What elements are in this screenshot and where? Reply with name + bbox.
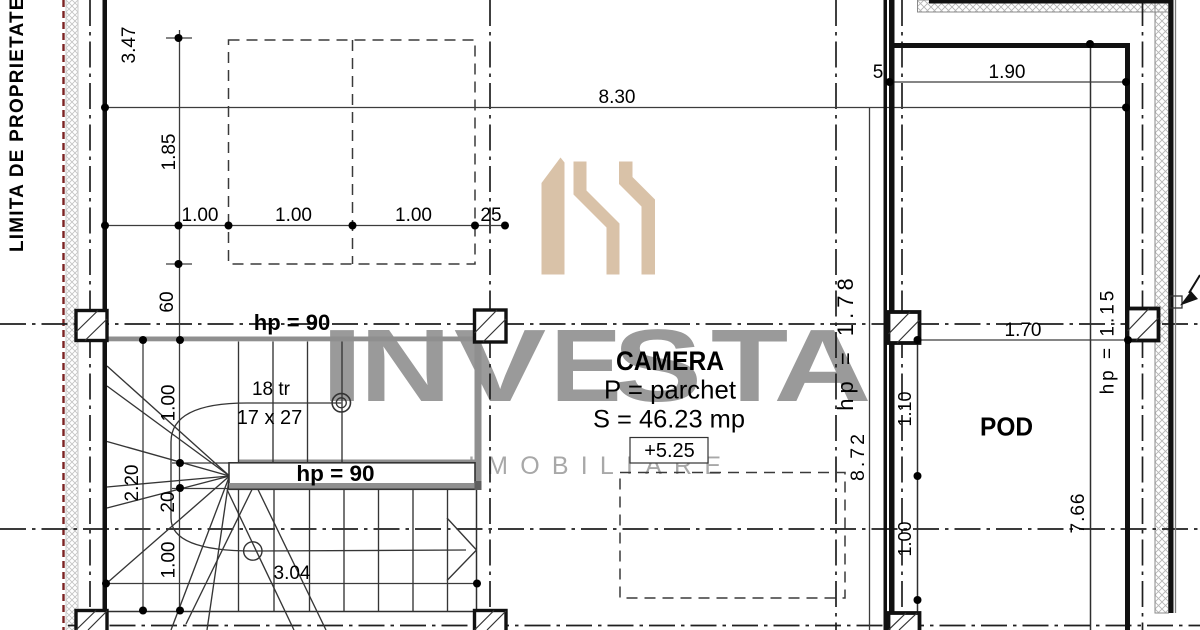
- svg-text:1.85: 1.85: [159, 134, 180, 171]
- svg-text:1.00: 1.00: [275, 205, 312, 226]
- svg-text:N: N: [360, 308, 451, 423]
- svg-text:8.72: 8.72: [847, 431, 869, 481]
- svg-text:3.47: 3.47: [119, 27, 140, 64]
- svg-text:hp = 1.15: hp = 1.15: [1098, 288, 1119, 395]
- svg-text:1.70: 1.70: [1005, 320, 1042, 341]
- svg-text:5: 5: [873, 62, 884, 83]
- svg-text:1.00: 1.00: [159, 385, 180, 422]
- svg-text:60: 60: [157, 291, 178, 312]
- svg-text:1.90: 1.90: [989, 62, 1026, 83]
- svg-text:7.66: 7.66: [1068, 493, 1089, 534]
- svg-text:1.00: 1.00: [895, 521, 915, 556]
- svg-text:1.00: 1.00: [182, 205, 219, 226]
- svg-text:LIMITA DE PROPRIETATE: LIMITA DE PROPRIETATE: [7, 0, 28, 252]
- svg-text:S = 46.23 mp: S = 46.23 mp: [593, 406, 745, 434]
- svg-text:8.30: 8.30: [599, 87, 636, 108]
- svg-text:1.00: 1.00: [395, 205, 432, 226]
- svg-text:20: 20: [158, 491, 179, 512]
- svg-text:3.04: 3.04: [274, 563, 311, 584]
- svg-text:P = parchet: P = parchet: [604, 375, 737, 405]
- svg-text:hp = 90: hp = 90: [296, 461, 374, 486]
- svg-text:POD: POD: [980, 412, 1033, 442]
- svg-text:17 x 27: 17 x 27: [237, 407, 303, 429]
- svg-text:hp = 1.78: hp = 1.78: [833, 273, 858, 410]
- svg-text:18 tr: 18 tr: [252, 379, 291, 400]
- svg-text:25: 25: [480, 205, 501, 226]
- svg-text:CAMERA: CAMERA: [616, 346, 724, 376]
- svg-text:1.00: 1.00: [159, 542, 180, 579]
- svg-text:1.10: 1.10: [895, 391, 915, 426]
- svg-text:2.20: 2.20: [122, 465, 143, 502]
- svg-text:+5.25: +5.25: [644, 440, 695, 462]
- svg-text:hp = 90: hp = 90: [254, 310, 330, 335]
